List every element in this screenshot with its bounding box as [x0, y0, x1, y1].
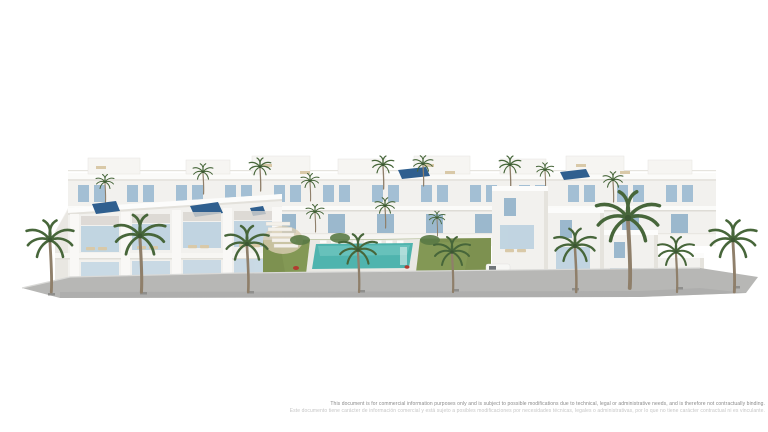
- disclaimer-line-spanish: Este documento tiene carácter de informa…: [125, 408, 765, 415]
- page-canvas: This document is for commercial informat…: [0, 0, 768, 432]
- development-rendering: [0, 0, 768, 432]
- legal-disclaimer: This document is for commercial informat…: [125, 401, 765, 414]
